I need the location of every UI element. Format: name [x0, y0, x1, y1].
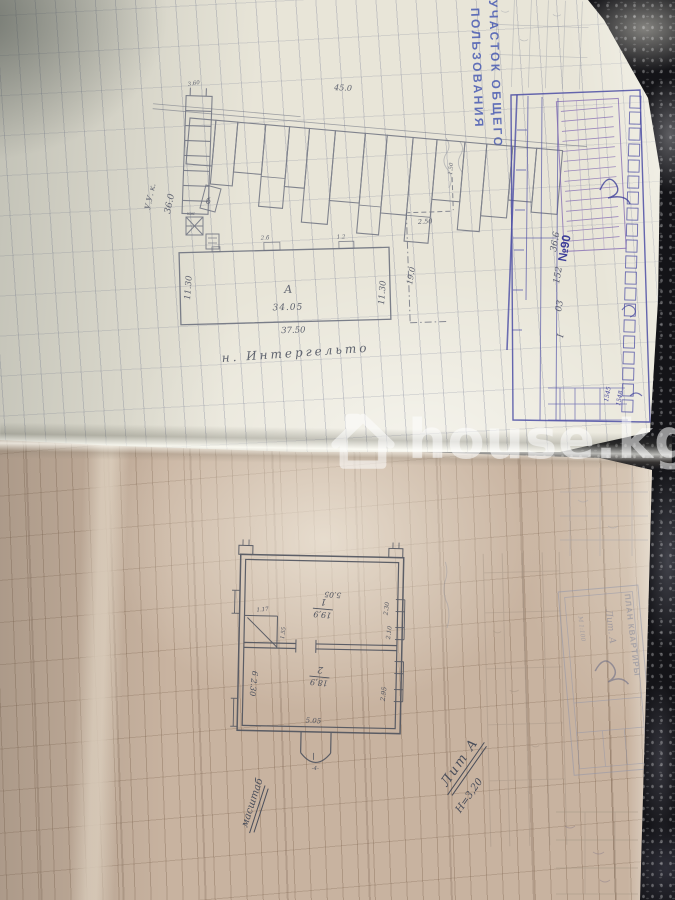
watermark-text: house.kg: [408, 408, 675, 471]
photo-of-technical-passport: УЧАСТОК ОБЩЕГО ПОЛЬЗОВАНИЯ 45.0: [0, 0, 675, 900]
house-icon: [330, 402, 396, 476]
watermark: house.kg: [330, 402, 675, 476]
